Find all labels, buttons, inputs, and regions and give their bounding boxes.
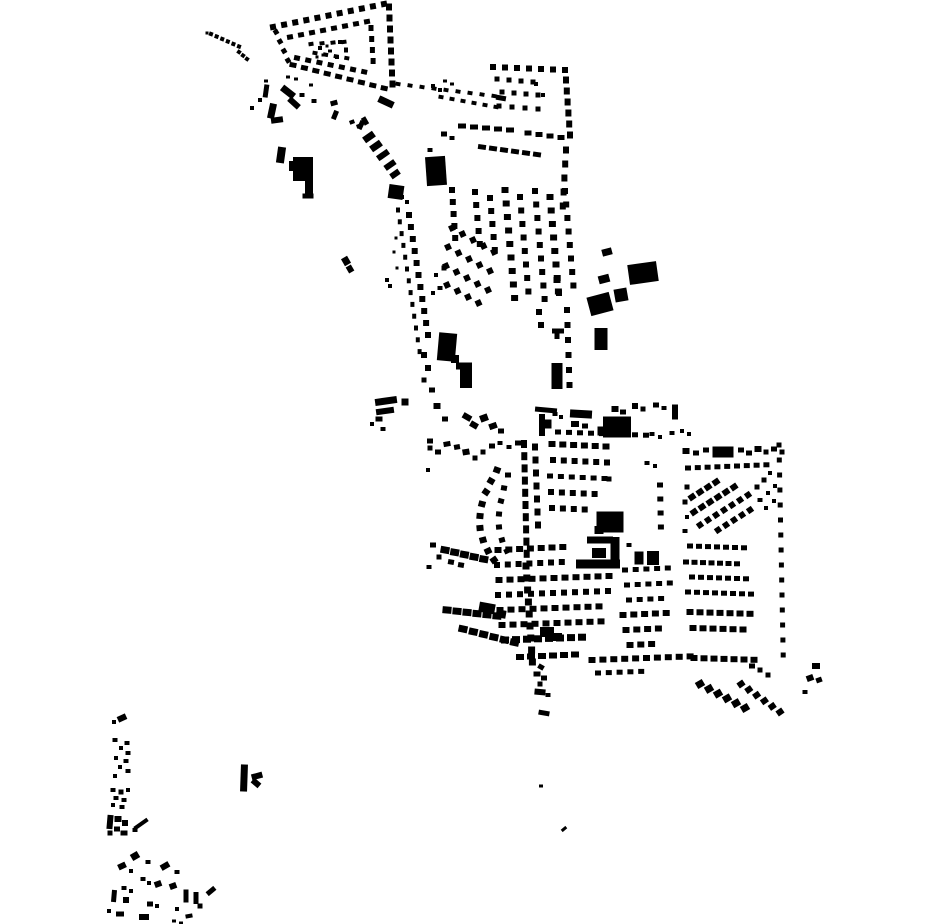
- building-footprint: [122, 798, 127, 802]
- building-footprint: [543, 420, 552, 429]
- building-footprint: [566, 430, 572, 435]
- building-footprint: [312, 99, 317, 103]
- building-footprint: [565, 110, 571, 117]
- building-footprint: [779, 548, 784, 553]
- building-footprint: [691, 655, 698, 661]
- building-footprint: [571, 652, 579, 658]
- building-footprint: [540, 283, 546, 289]
- building-footprint: [380, 85, 388, 91]
- building-footprint: [525, 131, 532, 136]
- building-footprint: [489, 444, 495, 449]
- building-footprint: [764, 506, 768, 510]
- building-footprint: [730, 626, 737, 632]
- building-footprint: [309, 30, 316, 36]
- building-footprint: [552, 363, 563, 389]
- building-footprint: [126, 751, 131, 755]
- building-footprint: [573, 574, 580, 580]
- building-footprint: [504, 214, 511, 220]
- building-footprint: [528, 591, 534, 597]
- building-footprint: [648, 641, 655, 647]
- building-footprint: [779, 563, 784, 568]
- building-footprint: [330, 40, 336, 45]
- building-footprint: [627, 642, 634, 648]
- building-footprint: [723, 545, 729, 550]
- building-footprint: [606, 670, 612, 675]
- building-footprint: [685, 466, 691, 471]
- building-footprint: [469, 236, 477, 244]
- building-footprint: [540, 575, 547, 581]
- building-footprint: [510, 282, 517, 288]
- building-footprint: [554, 620, 561, 626]
- building-footprint: [336, 10, 343, 17]
- building-footprint: [519, 606, 526, 612]
- building-footprint: [112, 720, 116, 724]
- building-footprint: [620, 612, 627, 618]
- building-footprint: [758, 498, 763, 502]
- building-footprint: [349, 119, 355, 124]
- building-footprint: [534, 82, 538, 86]
- building-footprint: [658, 511, 664, 516]
- building-footprint: [377, 95, 394, 108]
- building-footprint: [610, 656, 617, 662]
- building-footprint: [641, 407, 646, 412]
- building-footprint: [155, 904, 159, 908]
- building-footprint: [587, 619, 594, 625]
- building-footprint: [577, 430, 583, 435]
- building-footprint: [475, 299, 483, 307]
- building-footprint: [499, 622, 506, 628]
- building-footprint: [685, 590, 691, 595]
- building-footprint: [581, 491, 587, 497]
- building-footprint: [386, 4, 392, 11]
- building-footprint: [509, 268, 516, 274]
- building-footprint: [705, 544, 711, 549]
- building-footprint: [111, 788, 116, 792]
- building-footprint: [294, 55, 301, 61]
- building-footprint: [771, 447, 777, 452]
- building-footprint: [567, 242, 573, 248]
- building-footprint: [114, 796, 119, 800]
- building-footprint: [500, 90, 505, 95]
- building-footprint: [517, 194, 523, 200]
- building-footprint: [312, 68, 320, 74]
- building-footprint: [621, 656, 628, 662]
- building-footprint: [489, 221, 495, 227]
- building-footprint: [777, 488, 782, 493]
- building-footprint: [538, 545, 545, 551]
- building-footprint: [728, 501, 736, 509]
- building-footprint: [389, 70, 395, 77]
- building-footprint: [598, 618, 605, 624]
- building-footprint: [523, 262, 529, 268]
- building-footprint: [236, 44, 241, 49]
- building-footprint: [522, 464, 528, 472]
- building-footprint: [472, 189, 478, 195]
- building-footprint: [617, 670, 623, 675]
- building-footprint: [469, 420, 479, 429]
- building-footprint: [300, 93, 305, 97]
- building-footprint: [448, 559, 455, 565]
- building-footprint: [497, 498, 504, 504]
- building-footprint: [632, 655, 639, 661]
- building-footprint: [549, 505, 555, 511]
- figure-ground-map: [0, 0, 930, 924]
- building-footprint: [113, 774, 117, 778]
- building-footprint: [563, 147, 569, 154]
- building-footprint: [371, 58, 376, 64]
- building-footprint: [595, 573, 602, 579]
- building-footprint: [286, 76, 290, 79]
- building-footprint: [583, 589, 589, 595]
- building-footprint: [511, 295, 518, 301]
- building-footprint: [362, 131, 376, 144]
- building-footprint: [111, 803, 115, 807]
- building-footprint: [409, 290, 413, 295]
- building-footprint: [375, 396, 398, 406]
- building-footprint: [740, 627, 747, 633]
- building-footprint: [267, 103, 277, 119]
- building-footprint: [358, 5, 365, 12]
- building-footprint: [773, 484, 777, 488]
- building-footprint: [452, 607, 462, 615]
- building-footprint: [442, 266, 447, 271]
- building-footprint: [632, 432, 638, 437]
- building-footprint: [214, 34, 219, 39]
- building-footprint: [281, 21, 288, 28]
- building-footprint: [488, 208, 494, 214]
- building-footprint: [692, 560, 698, 565]
- building-footprint: [270, 24, 277, 31]
- building-footprint: [731, 698, 741, 708]
- building-footprint: [338, 64, 345, 70]
- building-footprint: [293, 157, 313, 181]
- building-footprint: [550, 590, 556, 596]
- building-footprint: [598, 427, 607, 436]
- building-footprint: [381, 427, 386, 431]
- building-footprint: [705, 498, 714, 507]
- building-footprint: [108, 831, 113, 836]
- building-footprint: [410, 236, 416, 242]
- building-footprint: [779, 578, 784, 583]
- building-footprint: [398, 219, 402, 224]
- building-footprint: [464, 293, 472, 301]
- building-footprint: [731, 656, 738, 662]
- building-footprint: [747, 611, 754, 617]
- building-footprint: [107, 909, 111, 913]
- building-footprint: [350, 66, 357, 72]
- building-footprint: [547, 134, 554, 139]
- building-footprint: [637, 642, 644, 648]
- building-footprint: [584, 574, 591, 580]
- building-footprint: [244, 56, 250, 62]
- building-footprint: [294, 78, 298, 81]
- building-footprint: [476, 513, 483, 520]
- building-footprint: [442, 417, 448, 422]
- building-footprint: [580, 475, 586, 480]
- building-footprint: [553, 412, 558, 416]
- building-footprint: [440, 546, 450, 554]
- building-footprint: [463, 274, 471, 282]
- building-footprint: [490, 64, 496, 70]
- building-footprint: [287, 96, 301, 109]
- building-footprint: [450, 548, 460, 556]
- building-footprint: [588, 431, 594, 436]
- building-footprint: [780, 450, 785, 455]
- building-footprint: [536, 229, 542, 235]
- building-footprint: [698, 575, 704, 580]
- building-footprint: [595, 671, 601, 676]
- building-footprint: [694, 590, 700, 595]
- building-footprint: [532, 621, 539, 627]
- building-footprint: [514, 65, 520, 71]
- building-footprint: [500, 147, 509, 153]
- building-footprint: [572, 589, 578, 595]
- building-footprint: [495, 609, 506, 619]
- building-footprint: [476, 525, 483, 532]
- building-footprint: [396, 267, 399, 270]
- building-footprint: [521, 235, 527, 241]
- building-footprint: [129, 869, 133, 873]
- building-footprint: [763, 462, 769, 467]
- building-footprint: [727, 610, 734, 616]
- building-footprint: [534, 672, 541, 677]
- building-footprint: [522, 248, 528, 254]
- building-footprint: [626, 598, 632, 603]
- building-footprint: [423, 320, 429, 326]
- building-footprint: [240, 764, 248, 791]
- building-footprint: [680, 429, 684, 433]
- building-footprint: [289, 161, 295, 171]
- building-footprint: [505, 473, 511, 478]
- building-footprint: [585, 604, 592, 610]
- building-footprint: [479, 555, 489, 563]
- building-footprint: [493, 466, 502, 474]
- building-footprint: [517, 591, 523, 597]
- building-footprint: [369, 3, 376, 10]
- building-footprint: [582, 424, 588, 429]
- building-footprint: [414, 260, 420, 266]
- building-footprint: [812, 663, 820, 669]
- building-footprint: [507, 577, 514, 583]
- building-footprint: [752, 691, 761, 700]
- building-footprint: [687, 432, 691, 436]
- building-footprint: [220, 36, 225, 41]
- building-footprint: [627, 669, 633, 674]
- building-footprint: [462, 609, 472, 617]
- building-footprint: [292, 19, 299, 26]
- building-footprint: [538, 710, 550, 717]
- building-footprint: [416, 272, 422, 278]
- building-footprint: [635, 582, 641, 587]
- building-footprint: [564, 88, 570, 95]
- building-footprint: [405, 267, 409, 272]
- building-footprint: [603, 444, 610, 450]
- building-footprint: [569, 269, 575, 275]
- building-footprint: [644, 626, 651, 632]
- building-footprint: [703, 590, 709, 595]
- building-footprint: [383, 159, 396, 171]
- building-footprint: [437, 555, 442, 560]
- building-footprint: [426, 468, 430, 472]
- building-footprint: [561, 458, 567, 464]
- building-footprint: [479, 536, 487, 544]
- building-footprint: [389, 169, 401, 180]
- building-footprint: [598, 274, 611, 285]
- building-footprint: [206, 886, 217, 896]
- building-footprint: [478, 630, 488, 639]
- building-footprint: [458, 562, 465, 568]
- building-footprint: [387, 26, 393, 33]
- building-footprint: [687, 544, 693, 549]
- building-footprint: [549, 221, 556, 227]
- building-footprint: [106, 815, 113, 829]
- building-footprint: [751, 657, 758, 663]
- building-footprint: [122, 820, 128, 826]
- building-footprint: [525, 599, 532, 606]
- building-footprint: [781, 653, 786, 658]
- building-footprint: [672, 405, 678, 420]
- building-footprint: [458, 124, 466, 129]
- building-footprint: [563, 202, 569, 208]
- building-footprint: [539, 785, 543, 788]
- building-footprint: [523, 525, 529, 533]
- building-footprint: [758, 668, 763, 673]
- building-footprint: [527, 546, 534, 552]
- building-footprint: [586, 292, 613, 316]
- building-footprint: [369, 25, 374, 31]
- building-footprint: [546, 693, 551, 697]
- building-footprint: [762, 478, 767, 483]
- building-footprint: [470, 125, 478, 130]
- building-footprint: [549, 441, 556, 447]
- building-footprint: [122, 886, 127, 890]
- building-footprint: [627, 543, 632, 547]
- building-footprint: [537, 663, 545, 670]
- building-footprint: [560, 652, 568, 658]
- building-footprint: [536, 309, 542, 315]
- building-footprint: [495, 547, 502, 553]
- building-footprint: [323, 71, 331, 77]
- building-footprint: [565, 322, 571, 328]
- building-footprint: [119, 790, 124, 795]
- building-footprint: [154, 880, 163, 888]
- building-footprint: [536, 132, 543, 137]
- building-footprint: [376, 417, 383, 422]
- building-footprint: [658, 525, 664, 530]
- building-footprint: [645, 582, 651, 587]
- building-footprint: [507, 445, 512, 449]
- building-footprint: [515, 441, 521, 446]
- building-footprint: [325, 12, 332, 19]
- building-footprint: [548, 560, 554, 566]
- building-footprint: [538, 653, 546, 659]
- building-footprint: [489, 633, 499, 642]
- building-footprint: [689, 575, 695, 580]
- building-footprint: [730, 591, 736, 596]
- building-footprint: [778, 503, 783, 508]
- building-footprint: [737, 611, 744, 617]
- building-footprint: [806, 674, 815, 682]
- building-footprint: [431, 84, 435, 88]
- building-footprint: [489, 145, 498, 151]
- building-footprint: [120, 805, 125, 809]
- building-footprint: [543, 620, 550, 626]
- building-footprint: [559, 490, 565, 496]
- building-footprint: [687, 493, 696, 502]
- building-footprint: [559, 559, 565, 565]
- building-footprint: [425, 365, 431, 371]
- building-footprint: [738, 511, 746, 519]
- building-footprint: [683, 448, 690, 454]
- building-footprint: [538, 66, 544, 72]
- building-footprint: [510, 622, 517, 628]
- building-footprint: [114, 827, 120, 832]
- building-footprint: [582, 459, 588, 465]
- building-footprint: [460, 99, 466, 104]
- building-footprint: [328, 50, 332, 53]
- building-footprint: [633, 567, 639, 572]
- building-footprint: [518, 208, 524, 214]
- building-footprint: [523, 538, 529, 546]
- building-footprint: [300, 65, 308, 71]
- building-footprint: [566, 367, 572, 373]
- building-footprint: [169, 882, 178, 890]
- building-footprint: [508, 607, 515, 613]
- building-footprint: [478, 500, 486, 508]
- building-footprint: [522, 489, 528, 497]
- building-footprint: [717, 610, 724, 616]
- building-footprint: [596, 603, 603, 609]
- building-footprint: [537, 242, 543, 248]
- building-footprint: [570, 490, 576, 496]
- building-footprint: [309, 84, 313, 87]
- building-footprint: [147, 902, 153, 907]
- building-footprint: [454, 444, 461, 450]
- building-footprint: [516, 546, 523, 552]
- building-footprint: [572, 458, 578, 464]
- building-footprint: [592, 491, 598, 497]
- building-footprint: [481, 450, 486, 455]
- building-footprint: [755, 485, 760, 490]
- building-footprint: [633, 627, 640, 633]
- building-footprint: [482, 126, 490, 131]
- building-footprint: [276, 147, 286, 164]
- building-footprint: [523, 106, 528, 111]
- building-footprint: [667, 581, 673, 586]
- building-footprint: [766, 673, 771, 678]
- building-footprint: [405, 200, 409, 204]
- building-footprint: [551, 575, 558, 581]
- building-footprint: [736, 496, 744, 504]
- building-footprint: [280, 85, 296, 100]
- building-footprint: [281, 48, 288, 55]
- building-footprint: [777, 443, 782, 448]
- building-footprint: [561, 175, 567, 182]
- building-footprint: [495, 77, 500, 82]
- building-footprint: [208, 31, 213, 36]
- building-footprint: [653, 403, 659, 408]
- building-footprint: [450, 83, 454, 86]
- building-footprint: [523, 501, 529, 509]
- building-footprint: [689, 508, 698, 517]
- building-footprint: [521, 452, 527, 460]
- building-footprint: [703, 448, 709, 453]
- building-footprint: [147, 881, 151, 885]
- building-footprint: [175, 907, 179, 911]
- building-footprint: [594, 588, 600, 594]
- building-footprint: [780, 593, 785, 598]
- building-footprint: [496, 577, 503, 583]
